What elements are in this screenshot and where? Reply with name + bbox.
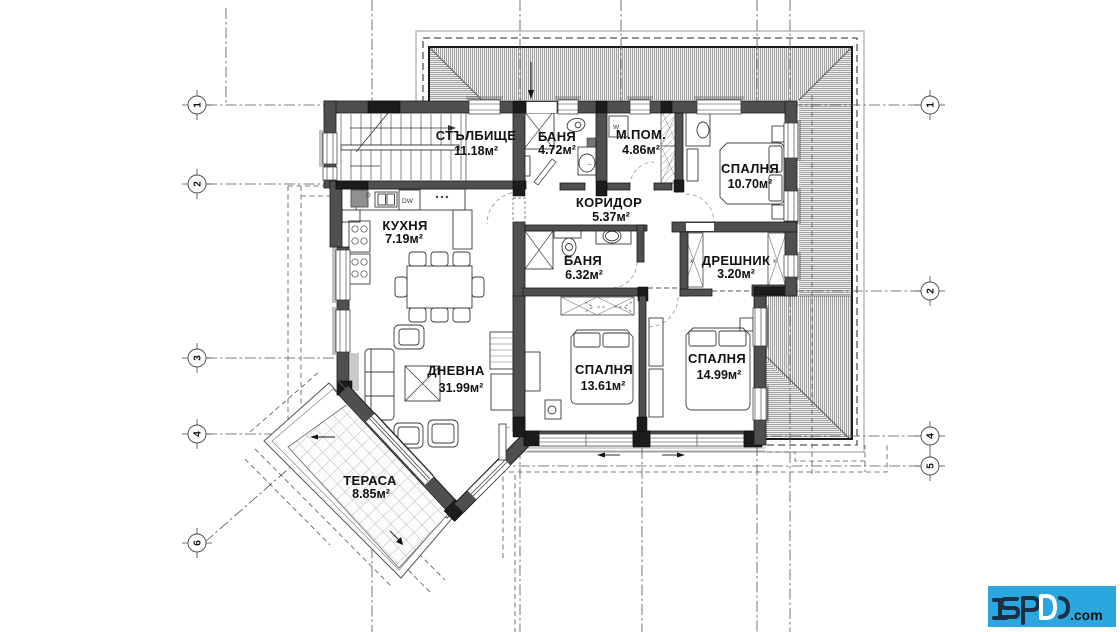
- svg-text:13.61м²: 13.61м²: [581, 379, 626, 393]
- svg-text:КУХНЯ: КУХНЯ: [382, 218, 427, 233]
- svg-text:ДРЕШНИК: ДРЕШНИК: [702, 253, 770, 268]
- svg-text:М.ПОМ.: М.ПОМ.: [616, 127, 666, 142]
- svg-text:5.37м²: 5.37м²: [592, 210, 630, 224]
- svg-text:11.18м²: 11.18м²: [454, 144, 498, 158]
- svg-text:.com: .com: [1070, 607, 1103, 623]
- svg-text:DW: DW: [402, 198, 414, 205]
- svg-text:СПАЛНЯ: СПАЛНЯ: [688, 351, 746, 366]
- svg-text:6.32м²: 6.32м²: [565, 268, 603, 282]
- svg-text:КОРИДОР: КОРИДОР: [576, 195, 642, 210]
- svg-text:31.99м²: 31.99м²: [439, 381, 484, 395]
- svg-text:СПАЛНЯ: СПАЛНЯ: [575, 362, 633, 377]
- svg-text:ТЕРАСА: ТЕРАСА: [343, 473, 397, 488]
- svg-text:СТЪЛБИЩЕ: СТЪЛБИЩЕ: [436, 128, 516, 143]
- svg-text:БАНЯ: БАНЯ: [564, 253, 602, 268]
- svg-text:ДНЕВНА: ДНЕВНА: [427, 363, 485, 378]
- svg-text:2: 2: [193, 181, 204, 187]
- svg-text:8.85м²: 8.85м²: [352, 487, 390, 501]
- svg-text:1: 1: [193, 102, 204, 108]
- svg-text:4: 4: [926, 433, 937, 439]
- svg-text:2: 2: [926, 288, 937, 294]
- svg-text:СПАЛНЯ: СПАЛНЯ: [721, 161, 779, 176]
- svg-text:6: 6: [193, 540, 204, 546]
- svg-text:4.72м²: 4.72м²: [538, 143, 576, 157]
- svg-text:5: 5: [926, 463, 937, 469]
- svg-text:1: 1: [926, 102, 937, 108]
- svg-text:14.99м²: 14.99м²: [697, 368, 742, 382]
- svg-text:10.70м²: 10.70м²: [728, 177, 773, 191]
- svg-text:7.19м²: 7.19м²: [385, 232, 423, 246]
- svg-text:4.86м²: 4.86м²: [622, 143, 660, 157]
- svg-text:БАНЯ: БАНЯ: [538, 129, 576, 144]
- svg-text:3.20м²: 3.20м²: [717, 267, 755, 281]
- svg-text:3: 3: [193, 355, 204, 361]
- svg-text:4: 4: [193, 431, 204, 437]
